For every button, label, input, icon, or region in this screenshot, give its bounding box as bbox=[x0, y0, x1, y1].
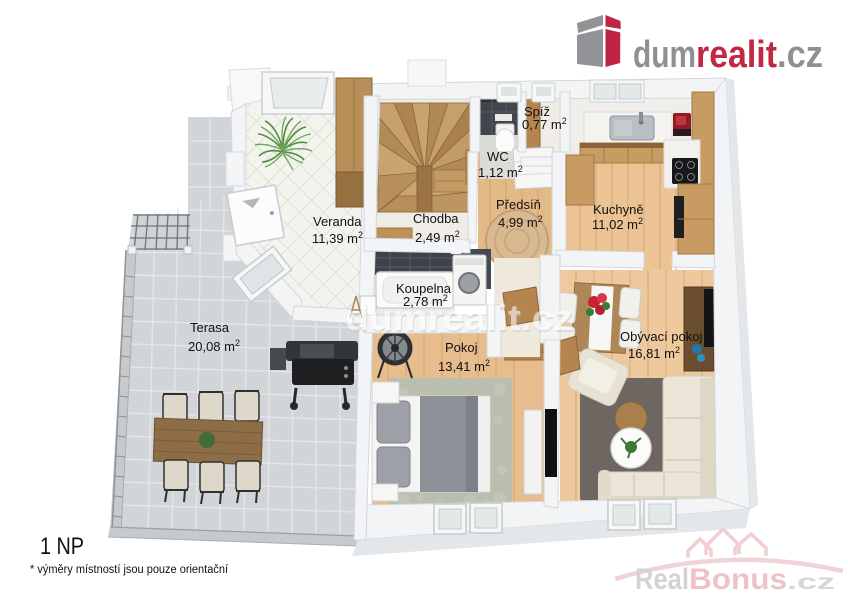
svg-text:2,49 m2: 2,49 m2 bbox=[415, 229, 460, 245]
svg-text:Veranda: Veranda bbox=[313, 214, 362, 229]
svg-text:4,99 m2: 4,99 m2 bbox=[498, 214, 543, 230]
svg-text:1 NP: 1 NP bbox=[40, 533, 84, 560]
svg-text:Real: Real bbox=[635, 563, 689, 596]
svg-text:.cz: .cz bbox=[787, 571, 835, 594]
svg-text:20,08 m2: 20,08 m2 bbox=[188, 338, 240, 354]
svg-text:Kuchyně: Kuchyně bbox=[593, 202, 644, 217]
svg-text:16,81 m2: 16,81 m2 bbox=[628, 345, 680, 361]
svg-text:Předsíň: Předsíň bbox=[496, 197, 541, 212]
svg-text:realit: realit bbox=[696, 34, 777, 76]
svg-text:11,02 m2: 11,02 m2 bbox=[592, 216, 643, 232]
svg-text:Chodba: Chodba bbox=[413, 211, 459, 226]
svg-text:Bonus: Bonus bbox=[689, 563, 787, 596]
svg-text:.cz: .cz bbox=[777, 34, 823, 76]
svg-text:dum: dum bbox=[633, 34, 696, 76]
svg-text:Terasa: Terasa bbox=[190, 320, 230, 335]
svg-text:* výměry místností jsou pouze: * výměry místností jsou pouze orientační bbox=[30, 564, 229, 576]
svg-text:Pokoj: Pokoj bbox=[445, 340, 478, 355]
svg-text:WC: WC bbox=[487, 149, 509, 164]
svg-text:2,78 m2: 2,78 m2 bbox=[403, 293, 448, 309]
svg-text:1,12 m2: 1,12 m2 bbox=[478, 164, 523, 180]
svg-text:Obývací pokoj: Obývací pokoj bbox=[620, 329, 702, 344]
svg-text:0,77 m2: 0,77 m2 bbox=[522, 116, 567, 132]
svg-text:13,41 m2: 13,41 m2 bbox=[438, 358, 490, 374]
svg-text:11,39 m2: 11,39 m2 bbox=[312, 230, 363, 246]
svg-text:dumrealit.cz: dumrealit.cz bbox=[345, 297, 573, 338]
